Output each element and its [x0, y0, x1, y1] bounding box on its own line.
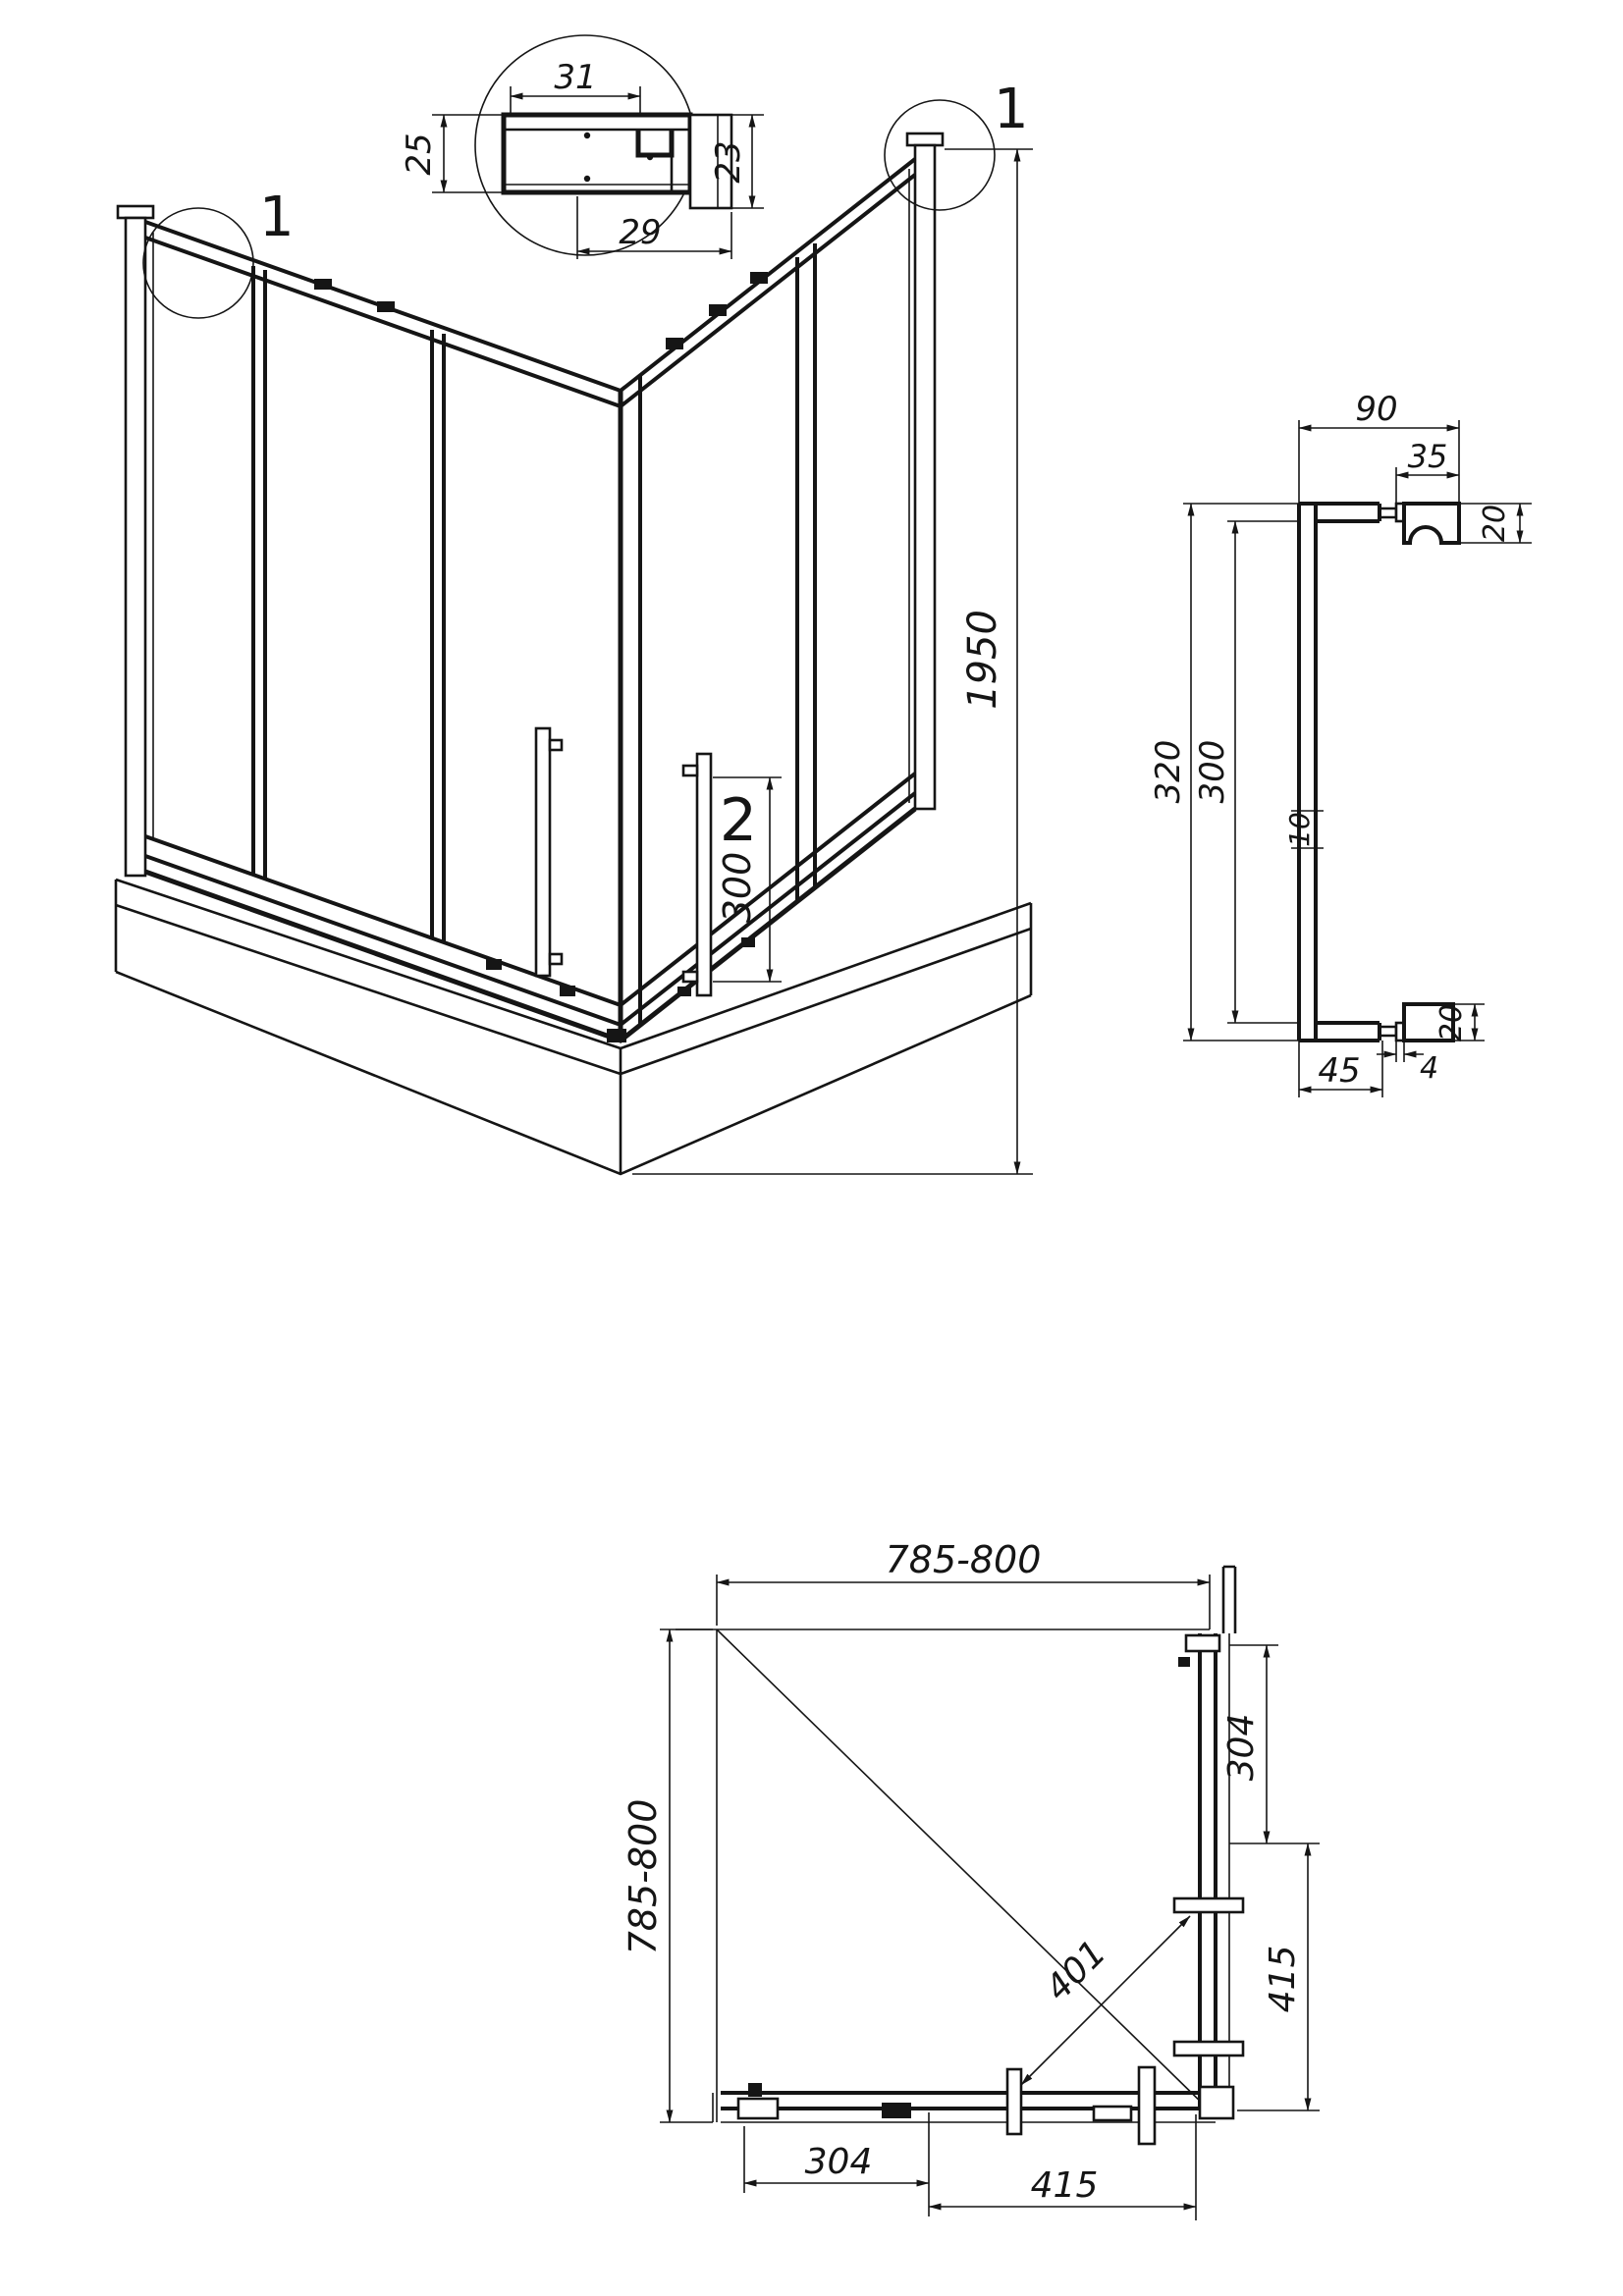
left-door-handle: [536, 728, 562, 976]
profile-section-geometry: [504, 115, 731, 208]
dim-label-right-304: 304: [1221, 1714, 1262, 1782]
dim-plan-bottom-304: 304: [744, 2112, 929, 2216]
dim-label-1950: 1950: [960, 610, 1005, 710]
handle-side-view: 90 35 20 320 300 10: [1149, 390, 1532, 1097]
dim-handle-35: 35: [1396, 438, 1459, 504]
dim-plan-width: 785-800: [717, 1538, 1210, 1629]
balloon-label-1-right: 1: [994, 78, 1029, 141]
balloon-label-2: 2: [720, 786, 757, 855]
dim-label-23: 23: [709, 140, 748, 183]
bottom-rails: [145, 774, 915, 1041]
right-door-handle: [683, 754, 711, 995]
dim-label-20-top: 20: [1478, 505, 1512, 542]
dim-handle-4: 4: [1377, 1041, 1438, 1086]
dim-handle-45: 45: [1299, 1041, 1382, 1097]
dim-label-width-785-800: 785-800: [886, 1538, 1042, 1581]
dim-label-29: 29: [619, 213, 661, 252]
dim-label-bottom-304: 304: [805, 2142, 873, 2182]
dim-label-25: 25: [400, 133, 439, 175]
plan-view: 785-800 785-800 304 415 401 304: [622, 1538, 1320, 2220]
dim-label-4: 4: [1420, 1051, 1438, 1086]
dim-handle-20-top: 20: [1459, 504, 1532, 543]
dim-label-31: 31: [554, 58, 596, 97]
shower-enclosure-drawing: 1 1 1950 2 300: [0, 0, 1623, 2296]
right-wall-profile: [907, 133, 943, 809]
dim-handle-300: 2 300: [713, 777, 782, 982]
dim-profile-31: 31: [511, 58, 640, 115]
detail-balloon-left: 1: [143, 186, 295, 318]
dim-label-300-side: 300: [1193, 740, 1232, 804]
technical-drawing-sheet: 1 1 1950 2 300: [0, 0, 1623, 2296]
dim-label-10: 10: [1283, 812, 1316, 847]
dim-label-bottom-415: 415: [1031, 2165, 1099, 2206]
dim-label-handle-300: 300: [716, 852, 759, 924]
dim-label-35: 35: [1408, 438, 1448, 475]
dim-label-20-bottom: 20: [1434, 1004, 1469, 1041]
dim-label-401: 401: [1038, 1933, 1114, 2009]
dim-label-45: 45: [1318, 1051, 1360, 1091]
perspective-view: 1 1 1950 2 300: [116, 78, 1033, 1174]
profile-section-detail: 31 25 23 29: [400, 35, 764, 259]
dim-profile-25: 25: [400, 115, 504, 192]
dim-plan-right-304: 304: [1221, 1645, 1320, 1843]
left-wall-profile: [118, 206, 153, 876]
balloon-label-1-left: 1: [259, 186, 295, 249]
handle-geometry: [1299, 504, 1459, 1041]
dim-label-320: 320: [1149, 740, 1188, 804]
dim-label-90: 90: [1355, 390, 1397, 429]
plan-outline: [676, 1567, 1235, 2122]
dim-handle-20-bottom: 20: [1434, 1004, 1485, 1041]
dim-plan-diagonal-401: 401: [1021, 1916, 1190, 2085]
shower-tray: [116, 880, 1031, 1174]
dim-plan-depth: 785-800: [622, 1629, 713, 2122]
dim-label-right-415: 415: [1263, 1946, 1303, 2013]
dim-plan-right-415: 415: [1237, 1843, 1320, 2110]
dim-handle-300-side: 300: [1193, 521, 1299, 1023]
dim-label-depth-785-800: 785-800: [622, 1799, 665, 1955]
plan-hardware: [738, 1635, 1243, 2144]
glass-panels: [153, 169, 909, 1041]
